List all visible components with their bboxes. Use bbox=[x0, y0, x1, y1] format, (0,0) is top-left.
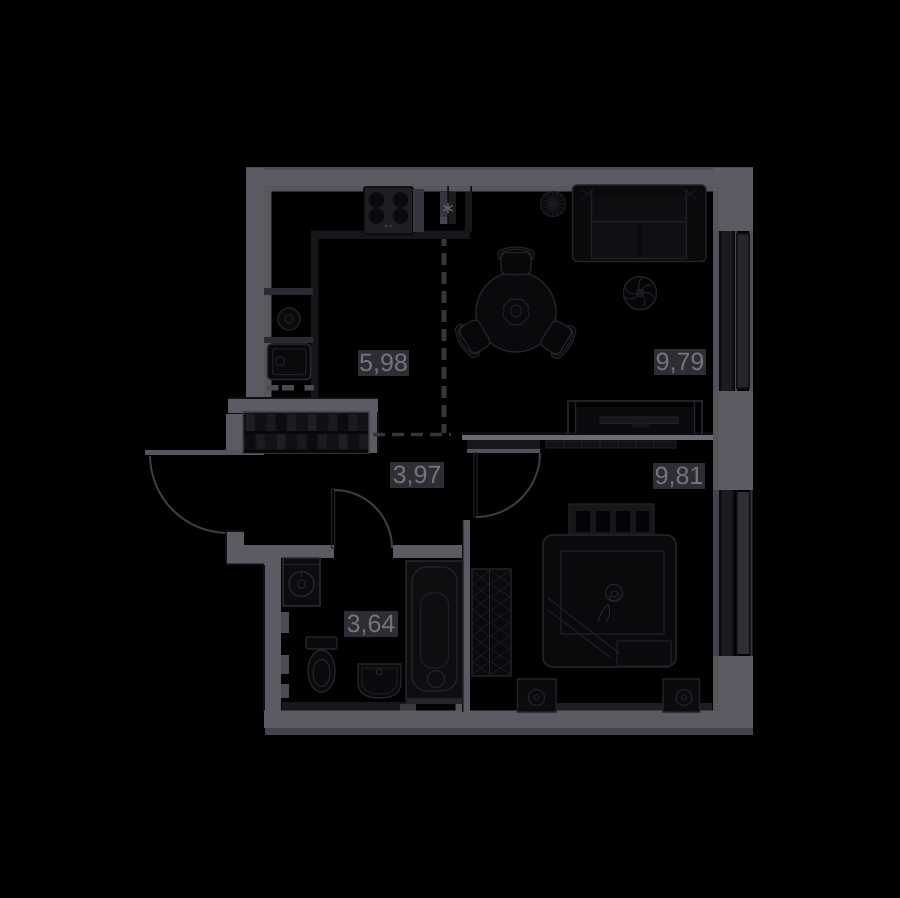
svg-text:9,81: 9,81 bbox=[655, 462, 704, 490]
svg-text:3,64: 3,64 bbox=[347, 610, 396, 638]
svg-text:5,98: 5,98 bbox=[359, 349, 408, 377]
svg-text:3,97: 3,97 bbox=[393, 461, 442, 489]
svg-text:9,79: 9,79 bbox=[656, 348, 705, 376]
